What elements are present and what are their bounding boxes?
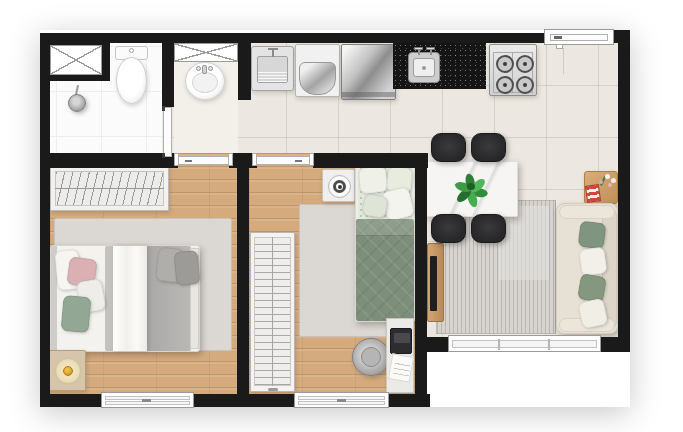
- refrigerator: [341, 44, 396, 100]
- hall-vent-window: [174, 43, 238, 62]
- bed1-white-runner: [113, 246, 147, 351]
- washbasin-spout: [202, 65, 207, 74]
- sofa-pillow-white: [578, 246, 608, 276]
- living-window-track: [452, 340, 597, 348]
- kitchen-faucet-right-stem: [430, 49, 432, 55]
- side-table: [584, 171, 618, 204]
- desk-chair-seat: [361, 347, 381, 367]
- table-lamp-icon: [63, 366, 73, 376]
- laptop-screen-line: [394, 333, 410, 343]
- bedroom2-door: [256, 156, 310, 165]
- flower-pink: [608, 183, 612, 187]
- bathroom-vent-shaft: [48, 43, 110, 81]
- wall-bedroom2-top: [313, 153, 428, 168]
- living-window-divider: [548, 339, 550, 350]
- bathroom-door-hinge: [162, 106, 165, 111]
- wall-left: [40, 33, 50, 407]
- bedroom1-wardrobe-rail: [55, 188, 164, 189]
- entry-door-swing-line: [563, 48, 564, 74]
- flower-pink: [599, 180, 603, 184]
- kitchen-sink-drain: [422, 66, 426, 70]
- bedroom2-door-handle: [295, 160, 302, 162]
- wall-right: [618, 30, 630, 352]
- bathroom-door: [163, 107, 172, 157]
- stove-burner-1: [496, 55, 514, 73]
- bed2-pillow-green-small: [361, 193, 388, 219]
- bedroom1-wardrobe: [50, 166, 169, 211]
- bathroom-shaft-window: [50, 45, 102, 75]
- bathroom-door-hinge: [162, 153, 165, 158]
- stove: [489, 44, 537, 96]
- bedroom1-double-bed: [50, 245, 200, 352]
- stove-burner-4: [516, 76, 534, 94]
- bedroom2-single-bed: [355, 162, 415, 322]
- bedroom1-window-latch: [142, 399, 151, 402]
- washbasin: [185, 62, 225, 100]
- living-window-divider: [498, 339, 500, 350]
- wall-between-bedrooms: [237, 153, 249, 407]
- laptop: [390, 328, 412, 354]
- wall-bedroom2-right: [415, 153, 427, 407]
- bedroom2-nightstand: [322, 169, 355, 202]
- floor-plan-canvas: [0, 0, 683, 432]
- bedroom1-door-handle: [185, 160, 192, 162]
- bedroom2-wardrobe: [250, 232, 295, 392]
- stove-burner-2: [516, 55, 534, 73]
- tv: [430, 256, 437, 311]
- entry-door-stop: [556, 44, 563, 49]
- dining-chair: [431, 133, 466, 162]
- bedroom2-desk: [386, 318, 414, 393]
- bed1-pillow-green: [60, 295, 91, 333]
- bedroom1-window: [101, 392, 194, 408]
- washbasin-tap-left: [196, 66, 201, 71]
- washbasin-tap-right: [208, 66, 213, 71]
- sofa-pillow-green: [577, 273, 607, 303]
- washing-machine-door: [299, 62, 336, 95]
- dining-table: [426, 161, 518, 217]
- wall-bathroom-bottom: [40, 153, 178, 168]
- toilet-flush-button: [129, 48, 134, 53]
- kitchen-sink: [408, 52, 440, 83]
- bed2-pillow-patterned: [358, 166, 389, 195]
- tv-sideboard: [427, 243, 444, 322]
- bed2-quilt-fold: [356, 219, 414, 236]
- entry-door-frame: [544, 29, 614, 45]
- dining-chair: [431, 214, 466, 243]
- sofa: [556, 203, 618, 334]
- washbasin-bowl: [192, 72, 218, 93]
- sofa-pillow-green: [578, 221, 607, 250]
- plant-core: [467, 183, 475, 190]
- bedroom2-window-latch: [337, 399, 346, 402]
- laundry-tank-sink: [251, 46, 294, 91]
- bedroom2-window: [294, 392, 389, 408]
- flower-white: [611, 178, 616, 183]
- sofa-pillow-white: [577, 298, 608, 330]
- washing-machine: [295, 44, 340, 97]
- decor-red-striped-box: [585, 184, 601, 203]
- shower-head-icon: [68, 94, 86, 112]
- bedroom2-wardrobe-rail: [272, 237, 273, 386]
- laundry-faucet-stem: [272, 49, 274, 57]
- notebook-lines: [393, 360, 411, 377]
- bedroom2-wardrobe-handle: [268, 388, 278, 391]
- dining-chair: [471, 133, 506, 162]
- laundry-washboard: [258, 70, 287, 82]
- wall-nook-divider: [238, 43, 251, 100]
- bedroom1-nightstand: [48, 350, 86, 391]
- wall-top: [40, 33, 546, 43]
- living-rug-inner-panel: [499, 206, 549, 280]
- sofa-armrest-top: [559, 205, 615, 219]
- speaker-center-dot: [338, 185, 342, 189]
- desk-chair: [352, 338, 390, 376]
- living-room-window: [448, 335, 601, 352]
- kitchen-faucet-left-stem: [418, 49, 420, 55]
- stove-burner-3: [496, 76, 514, 94]
- notebook: [388, 353, 414, 382]
- bedroom1-door: [178, 156, 229, 165]
- toilet-bowl: [116, 57, 147, 104]
- wall-bathroom-right: [162, 33, 174, 107]
- refrigerator-base-strip: [342, 92, 395, 97]
- bed2-green-quilt: [356, 219, 414, 321]
- bed1-cushion-gray: [174, 250, 201, 286]
- entry-door-handle: [554, 36, 562, 39]
- flower-white: [605, 174, 610, 179]
- dining-chair: [471, 214, 506, 243]
